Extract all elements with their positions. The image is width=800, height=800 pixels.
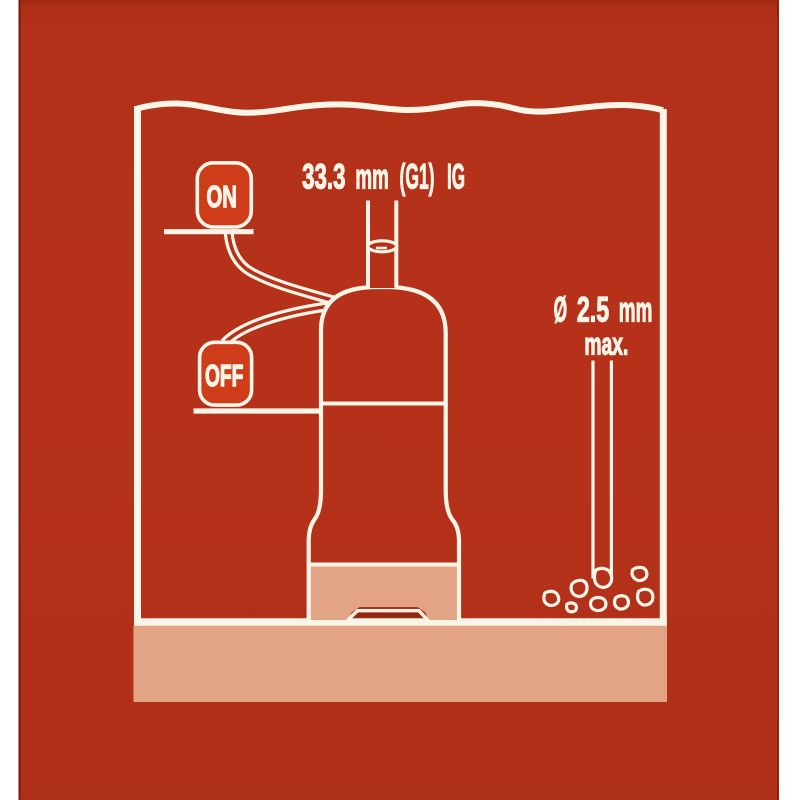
svg-text:mm: mm xyxy=(355,157,388,196)
svg-text:33.3: 33.3 xyxy=(302,157,345,196)
svg-text:Ø: Ø xyxy=(554,291,568,330)
svg-text:OFF: OFF xyxy=(205,359,244,393)
svg-text:2.5: 2.5 xyxy=(577,291,609,330)
svg-text:max.: max. xyxy=(584,325,628,361)
svg-text:ON: ON xyxy=(206,180,237,214)
svg-text:mm: mm xyxy=(619,291,653,330)
svg-text:(G1): (G1) xyxy=(400,157,435,196)
svg-text:IG: IG xyxy=(447,157,465,196)
